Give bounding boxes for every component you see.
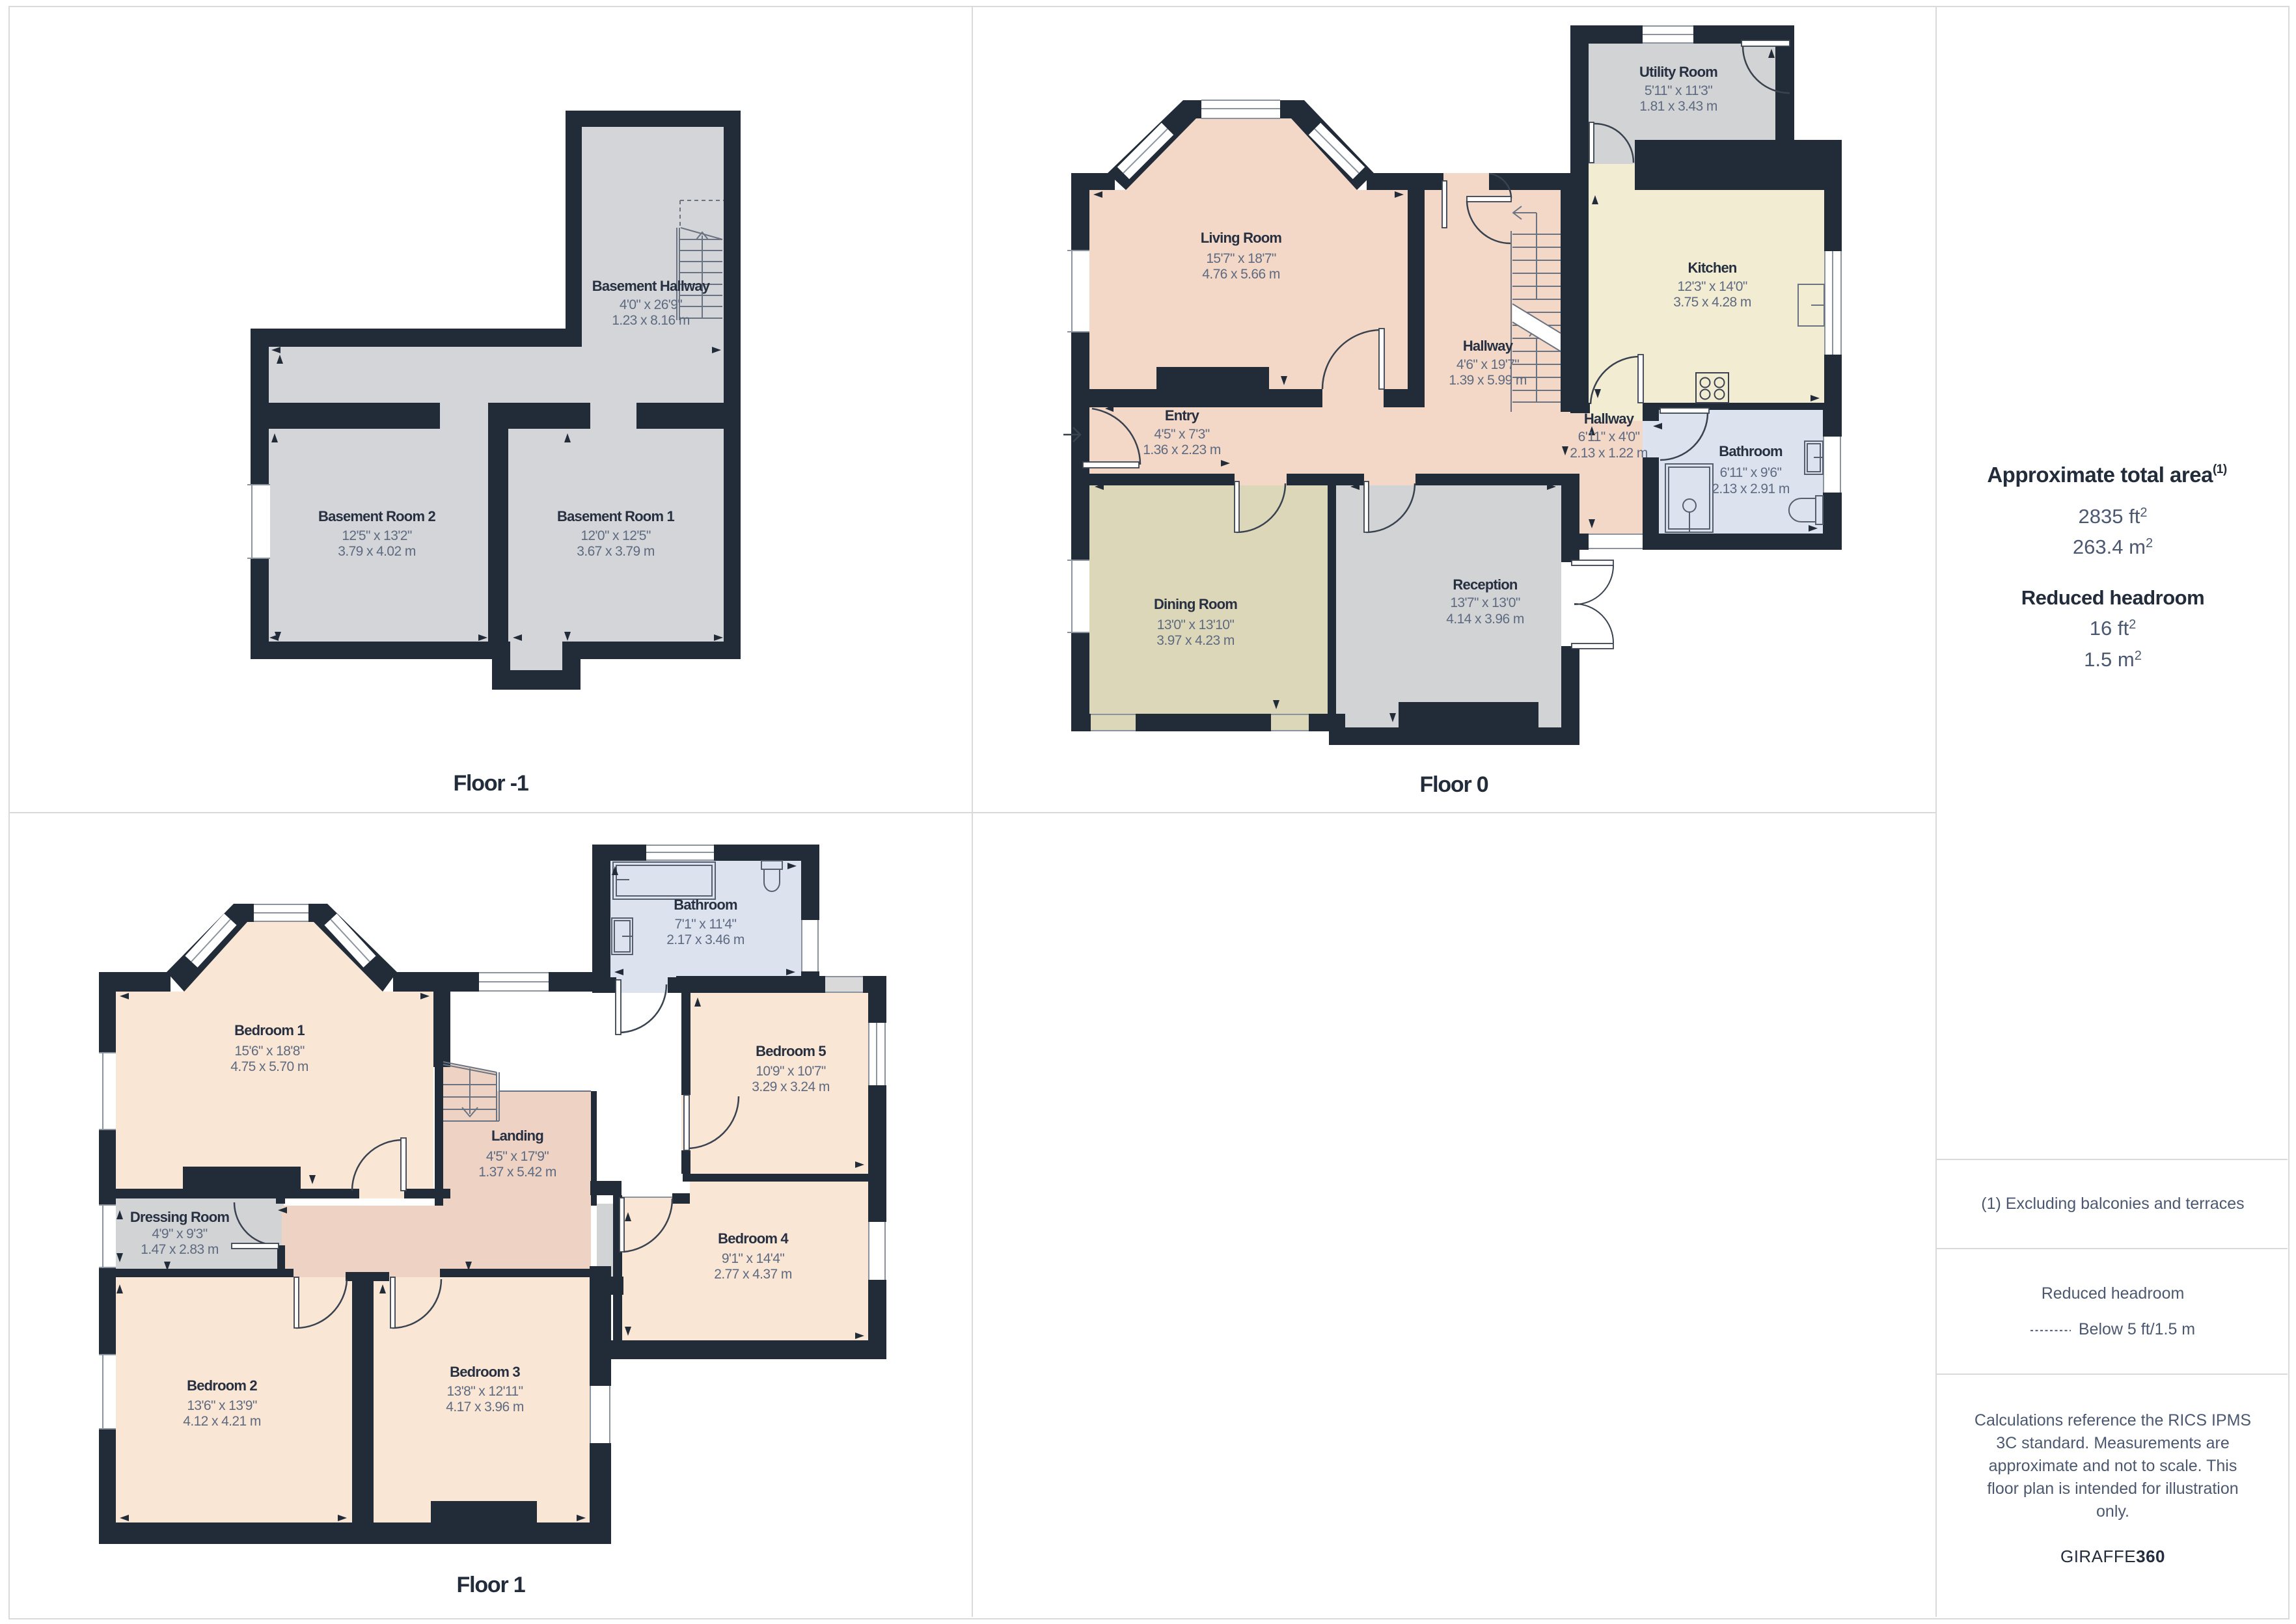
svg-text:1.36 x 2.23 m: 1.36 x 2.23 m [1143,442,1221,457]
svg-text:4'9" x 9'3": 4'9" x 9'3" [152,1226,207,1241]
svg-text:15'6" x 18'8": 15'6" x 18'8" [234,1044,305,1059]
svg-text:5'11" x 11'3": 5'11" x 11'3" [1645,83,1712,98]
svg-text:13'0" x 13'10": 13'0" x 13'10" [1157,617,1235,632]
svg-text:2.77 x 4.37 m: 2.77 x 4.37 m [714,1267,792,1282]
svg-text:Hallway: Hallway [1463,338,1514,354]
svg-text:6'11" x 4'0": 6'11" x 4'0" [1578,429,1640,444]
svg-text:1.37 x 5.42 m: 1.37 x 5.42 m [478,1165,556,1180]
svg-text:Floor 1: Floor 1 [457,1573,525,1597]
svg-text:Bedroom 2: Bedroom 2 [187,1377,257,1394]
svg-text:3.97 x 4.23 m: 3.97 x 4.23 m [1156,633,1235,648]
svg-text:Basement Room 2: Basement Room 2 [318,508,436,524]
svg-text:1.81 x 3.43 m: 1.81 x 3.43 m [1639,99,1717,114]
svg-text:Dressing Room: Dressing Room [130,1209,229,1225]
svg-text:4.14 x 3.96 m: 4.14 x 3.96 m [1446,612,1524,627]
svg-text:12'0" x 12'5": 12'0" x 12'5" [581,528,651,543]
svg-text:4.17 x 3.96 m: 4.17 x 3.96 m [446,1400,524,1414]
svg-text:4'5" x 7'3": 4'5" x 7'3" [1154,427,1209,442]
svg-text:3.79 x 4.02 m: 3.79 x 4.02 m [338,544,416,559]
svg-text:Bedroom 1: Bedroom 1 [234,1022,305,1038]
svg-text:12'3" x 14'0": 12'3" x 14'0" [1677,279,1747,294]
svg-text:Landing: Landing [491,1128,543,1144]
svg-text:Floor 0: Floor 0 [1420,772,1488,797]
svg-text:13'6" x 13'9": 13'6" x 13'9" [187,1398,257,1413]
svg-text:1.39 x 5.99 m: 1.39 x 5.99 m [1449,373,1527,388]
svg-text:Basement Hallway: Basement Hallway [592,278,711,294]
svg-text:2.17 x 3.46 m: 2.17 x 3.46 m [666,932,745,947]
svg-text:9'1" x 14'4": 9'1" x 14'4" [722,1251,784,1266]
svg-text:Dining Room: Dining Room [1154,596,1237,612]
svg-text:10'9" x 10'7": 10'9" x 10'7" [756,1064,826,1079]
svg-text:Bedroom 4: Bedroom 4 [718,1230,789,1247]
svg-text:Bathroom: Bathroom [1719,443,1783,459]
svg-text:Reception: Reception [1453,576,1518,593]
svg-text:4.76 x 5.66 m: 4.76 x 5.66 m [1202,267,1280,282]
svg-text:15'7" x 18'7": 15'7" x 18'7" [1206,251,1276,266]
svg-text:13'7" x 13'0": 13'7" x 13'0" [1450,595,1520,610]
svg-text:7'1" x 11'4": 7'1" x 11'4" [675,917,737,932]
svg-text:Bedroom 3: Bedroom 3 [450,1364,520,1380]
svg-text:4'0" x 26'9": 4'0" x 26'9" [620,297,682,312]
svg-text:Hallway: Hallway [1584,411,1635,427]
svg-text:3.67 x 3.79 m: 3.67 x 3.79 m [577,544,655,559]
svg-text:4'6" x 19'7": 4'6" x 19'7" [1456,357,1519,372]
svg-text:1.23 x 8.16 m: 1.23 x 8.16 m [612,313,690,328]
svg-text:Entry: Entry [1165,407,1200,424]
svg-text:6'11" x 9'6": 6'11" x 9'6" [1720,465,1782,480]
svg-text:2.13 x 1.22 m: 2.13 x 1.22 m [1570,446,1648,461]
svg-text:12'5" x 13'2": 12'5" x 13'2" [342,528,412,543]
svg-text:Basement Room 1: Basement Room 1 [557,508,675,524]
svg-text:Living Room: Living Room [1201,230,1282,246]
svg-text:Utility Room: Utility Room [1639,64,1717,80]
svg-text:Bedroom 5: Bedroom 5 [756,1043,826,1059]
svg-text:Bathroom: Bathroom [674,897,737,913]
svg-text:4.75 x 5.70 m: 4.75 x 5.70 m [230,1059,308,1074]
svg-text:4'5" x 17'9": 4'5" x 17'9" [486,1149,549,1164]
svg-text:Kitchen: Kitchen [1688,260,1736,276]
svg-text:3.75 x 4.28 m: 3.75 x 4.28 m [1673,295,1751,310]
svg-text:1.47 x 2.83 m: 1.47 x 2.83 m [141,1242,219,1257]
svg-text:4.12 x 4.21 m: 4.12 x 4.21 m [183,1414,261,1429]
svg-text:2.13 x 2.91 m: 2.13 x 2.91 m [1712,481,1790,496]
svg-text:13'8" x 12'11": 13'8" x 12'11" [447,1384,523,1399]
svg-text:Floor -1: Floor -1 [453,771,528,796]
svg-text:3.29 x 3.24 m: 3.29 x 3.24 m [752,1079,830,1094]
